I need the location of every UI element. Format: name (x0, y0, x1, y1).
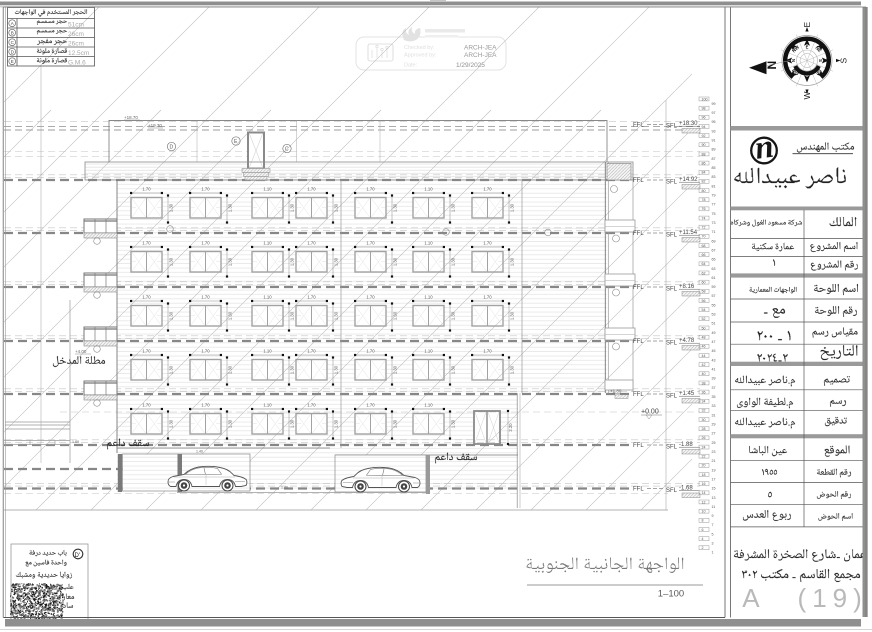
svg-text:89: 89 (712, 148, 716, 152)
svg-text:35: 35 (712, 395, 716, 399)
svg-text:1.70: 1.70 (201, 187, 210, 192)
svg-text:32: 32 (702, 409, 706, 413)
svg-text:45: 45 (712, 349, 716, 353)
svg-text:1.30: 1.30 (169, 311, 174, 320)
svg-text:68: 68 (702, 244, 706, 248)
svg-text:69: 69 (712, 239, 716, 243)
svg-text:FFL: FFL (633, 123, 644, 129)
svg-text:92: 92 (702, 134, 706, 138)
svg-text:11: 11 (712, 505, 716, 509)
svg-text:A: A (11, 21, 14, 26)
svg-text:1.88: 1.88 (72, 440, 79, 444)
svg-text:SFL: SFL (666, 488, 678, 494)
svg-text:53: 53 (712, 313, 716, 317)
svg-text:75: 75 (712, 212, 716, 216)
svg-text:1.70: 1.70 (142, 187, 151, 192)
svg-text:1.70: 1.70 (483, 295, 492, 300)
svg-text:18: 18 (702, 473, 706, 477)
svg-text:46: 46 (702, 345, 706, 349)
svg-text:1.30: 1.30 (393, 365, 398, 374)
svg-text:1.30: 1.30 (290, 365, 295, 374)
svg-text:40: 40 (702, 372, 706, 376)
svg-text:4: 4 (702, 537, 704, 541)
svg-text:1.70: 1.70 (307, 187, 316, 192)
svg-text:W: W (802, 91, 812, 99)
svg-text:1: 1 (712, 551, 714, 555)
svg-text:51cm: 51cm (68, 22, 84, 29)
svg-text:1.40: 1.40 (196, 450, 203, 454)
svg-text:76: 76 (702, 207, 706, 211)
svg-text:1.30: 1.30 (451, 203, 456, 212)
svg-text:26cm: 26cm (68, 41, 84, 48)
svg-text:25: 25 (712, 441, 716, 445)
svg-text:71: 71 (712, 230, 716, 234)
svg-text:1.30: 1.30 (393, 257, 398, 266)
svg-text:S: S (839, 58, 849, 64)
svg-text:1.70: 1.70 (366, 349, 375, 354)
svg-text:95: 95 (712, 120, 716, 124)
svg-text:E: E (802, 22, 812, 28)
svg-text:50: 50 (702, 326, 706, 330)
svg-text:FFL: FFL (633, 392, 644, 398)
svg-text:1.30: 1.30 (334, 257, 339, 266)
svg-text:20: 20 (702, 464, 706, 468)
svg-text:78: 78 (702, 198, 706, 202)
svg-text:62: 62 (702, 271, 706, 275)
svg-text:1.70: 1.70 (142, 349, 151, 354)
svg-text:1.30: 1.30 (334, 365, 339, 374)
svg-text:1.30: 1.30 (451, 365, 456, 374)
svg-text:1.70: 1.70 (201, 295, 210, 300)
svg-text:42: 42 (702, 363, 706, 367)
svg-text:21: 21 (712, 459, 716, 463)
svg-text:1.70: 1.70 (483, 349, 492, 354)
svg-text:8: 8 (702, 519, 704, 523)
svg-text:5: 5 (712, 532, 714, 536)
svg-text:1.70: 1.70 (307, 241, 316, 246)
svg-text:51: 51 (712, 322, 716, 326)
svg-text:97: 97 (712, 111, 716, 115)
svg-text:36: 36 (702, 390, 706, 394)
svg-text:G.M.6: G.M.6 (68, 60, 86, 67)
svg-text:81: 81 (712, 184, 716, 188)
svg-text:85: 85 (712, 166, 716, 170)
svg-text:B: B (11, 31, 14, 36)
svg-text:FFL: FFL (633, 339, 644, 345)
svg-text:66: 66 (702, 253, 706, 257)
svg-text:1.30: 1.30 (290, 419, 295, 428)
svg-text:87: 87 (712, 157, 716, 161)
svg-text:1.30: 1.30 (290, 311, 295, 320)
svg-text:E: E (11, 59, 14, 64)
svg-text:1.30: 1.30 (393, 311, 398, 320)
svg-text:3: 3 (712, 542, 714, 546)
svg-text:86: 86 (702, 161, 706, 165)
svg-text:41: 41 (712, 368, 716, 372)
svg-text:1.70: 1.70 (483, 187, 492, 192)
svg-text:1.40: 1.40 (281, 486, 288, 490)
svg-text:1.30: 1.30 (451, 311, 456, 320)
svg-text:FFL: FFL (633, 443, 644, 449)
svg-text:1.70: 1.70 (366, 295, 375, 300)
svg-text:9: 9 (712, 514, 714, 518)
svg-text:39: 39 (712, 377, 716, 381)
svg-text:D': D' (75, 553, 80, 559)
svg-text:1.30: 1.30 (228, 365, 233, 374)
svg-text:1.30: 1.30 (451, 419, 456, 428)
svg-text:1.30: 1.30 (228, 311, 233, 320)
svg-text:E: E (806, 45, 809, 50)
svg-text:23: 23 (712, 450, 716, 454)
svg-text:1–100: 1–100 (658, 589, 684, 600)
svg-text:1.30: 1.30 (393, 203, 398, 212)
svg-text:100: 100 (702, 97, 708, 101)
svg-text:1.30: 1.30 (169, 257, 174, 266)
svg-text:80: 80 (702, 189, 706, 193)
svg-text:1.30: 1.30 (228, 257, 233, 266)
svg-text:1.10: 1.10 (263, 403, 272, 408)
svg-text:SFL: SFL (666, 341, 678, 347)
svg-text:SFL: SFL (666, 124, 678, 130)
svg-text:1.30: 1.30 (169, 419, 174, 428)
svg-text:15: 15 (712, 487, 716, 491)
svg-text:1.70: 1.70 (366, 187, 375, 192)
svg-text:FFL: FFL (633, 285, 644, 291)
svg-text:13: 13 (712, 496, 716, 500)
svg-text:73: 73 (712, 221, 716, 225)
svg-text:48: 48 (702, 336, 706, 340)
svg-text:1.30: 1.30 (510, 203, 515, 212)
svg-text:+1.80: +1.80 (610, 388, 622, 393)
svg-text:72: 72 (702, 226, 706, 230)
svg-text:1.30: 1.30 (169, 203, 174, 212)
svg-text:58: 58 (702, 290, 706, 294)
svg-text:28: 28 (702, 427, 706, 431)
svg-text:98: 98 (702, 107, 706, 111)
svg-text:37: 37 (712, 386, 716, 390)
svg-text:1.10: 1.10 (424, 187, 433, 192)
svg-text:57: 57 (712, 294, 716, 298)
svg-text:55: 55 (712, 303, 716, 307)
svg-text:1.70: 1.70 (201, 241, 210, 246)
svg-text:+4.00: +4.00 (75, 349, 87, 354)
svg-text:10: 10 (702, 510, 706, 514)
svg-text:90: 90 (702, 143, 706, 147)
svg-text:1.30: 1.30 (393, 419, 398, 428)
svg-text:+0.00: +0.00 (641, 409, 659, 416)
svg-text:S: S (818, 59, 823, 62)
svg-text:12.5cm: 12.5cm (68, 50, 89, 57)
svg-text:1.70: 1.70 (201, 349, 210, 354)
svg-text:1.70: 1.70 (142, 403, 151, 408)
svg-text:1.70: 1.70 (307, 403, 316, 408)
svg-text:1.70: 1.70 (307, 295, 316, 300)
svg-text:1.10: 1.10 (424, 241, 433, 246)
svg-text:59: 59 (712, 285, 716, 289)
svg-text:1.30: 1.30 (451, 257, 456, 266)
svg-text:1.30: 1.30 (510, 311, 515, 320)
svg-text:1.10: 1.10 (424, 403, 433, 408)
svg-text:FFL: FFL (633, 178, 644, 184)
svg-text:49: 49 (712, 331, 716, 335)
svg-text:1.30: 1.30 (290, 257, 295, 266)
svg-text:SFL: SFL (666, 445, 678, 451)
svg-text:N: N (791, 59, 796, 62)
svg-text:7: 7 (712, 523, 714, 527)
svg-text:Date:: Date: (404, 63, 418, 69)
svg-text:1.70: 1.70 (366, 241, 375, 246)
svg-text:1.10: 1.10 (263, 295, 272, 300)
svg-text:SFL: SFL (666, 287, 678, 293)
svg-text:SFL: SFL (666, 180, 678, 186)
svg-text:1.70: 1.70 (142, 241, 151, 246)
svg-text:1.70: 1.70 (142, 295, 151, 300)
svg-text:83: 83 (712, 175, 716, 179)
svg-text:94: 94 (702, 125, 706, 129)
svg-text:ARCH-JEA: ARCH-JEA (464, 45, 497, 52)
svg-text:79: 79 (712, 194, 716, 198)
svg-text:1.10: 1.10 (263, 187, 272, 192)
svg-text:ARCH-JEA: ARCH-JEA (464, 52, 497, 59)
svg-text:96: 96 (702, 116, 706, 120)
svg-text:88: 88 (702, 152, 706, 156)
svg-text:19: 19 (712, 468, 716, 472)
svg-text:C: C (285, 147, 289, 153)
svg-text:99: 99 (712, 102, 716, 106)
svg-text:6: 6 (702, 528, 704, 532)
svg-text:74: 74 (702, 216, 706, 220)
svg-text:1.30: 1.30 (334, 203, 339, 212)
svg-text:91: 91 (712, 139, 716, 143)
svg-text:1.30: 1.30 (169, 365, 174, 374)
svg-text:44: 44 (702, 354, 706, 358)
svg-text:1.30: 1.30 (228, 203, 233, 212)
svg-text:+19.30: +19.30 (148, 123, 162, 128)
svg-text:56: 56 (702, 299, 706, 303)
svg-text:22: 22 (702, 455, 706, 459)
svg-text:61: 61 (712, 276, 716, 280)
svg-text:1.10: 1.10 (424, 349, 433, 354)
svg-text:33: 33 (712, 404, 716, 408)
svg-text:Approved by:: Approved by: (404, 53, 437, 59)
svg-text:43: 43 (712, 358, 716, 362)
svg-text:93: 93 (712, 129, 716, 133)
svg-text:12: 12 (702, 500, 706, 504)
svg-text:2.20: 2.20 (508, 423, 513, 432)
svg-text:1.70: 1.70 (201, 403, 210, 408)
svg-text:52: 52 (702, 317, 706, 321)
svg-text:SFL: SFL (666, 233, 678, 239)
svg-text:FFL: FFL (633, 231, 644, 237)
svg-text:27: 27 (712, 432, 716, 436)
svg-text:63: 63 (712, 267, 716, 271)
svg-text:77: 77 (712, 203, 716, 207)
svg-text:SFL: SFL (666, 394, 678, 400)
svg-text:17: 17 (712, 477, 716, 481)
svg-text:D: D (170, 145, 174, 151)
svg-text:+18.70: +18.70 (124, 115, 138, 120)
svg-text:W: W (805, 72, 809, 77)
svg-text:26: 26 (702, 436, 706, 440)
svg-text:47: 47 (712, 340, 716, 344)
svg-text:16: 16 (702, 482, 706, 486)
svg-text:65: 65 (712, 258, 716, 262)
svg-text:82: 82 (702, 180, 706, 184)
svg-text:54: 54 (702, 308, 706, 312)
svg-text:26cm: 26cm (68, 31, 84, 38)
svg-text:1.10: 1.10 (263, 241, 272, 246)
svg-text:FFL: FFL (633, 487, 644, 493)
svg-text:1.30: 1.30 (228, 419, 233, 428)
svg-text:N: N (765, 61, 779, 70)
svg-text:29: 29 (712, 423, 716, 427)
svg-text:24: 24 (702, 445, 706, 449)
svg-text:64: 64 (702, 262, 706, 266)
svg-text:70: 70 (702, 235, 706, 239)
svg-text:1.30: 1.30 (334, 311, 339, 320)
svg-text:1.30: 1.30 (510, 257, 515, 266)
svg-text:60: 60 (702, 281, 706, 285)
svg-text:1.70: 1.70 (483, 241, 492, 246)
svg-text:31: 31 (712, 413, 716, 417)
svg-text:67: 67 (712, 248, 716, 252)
svg-text:1.10: 1.10 (263, 349, 272, 354)
svg-text:38: 38 (702, 381, 706, 385)
svg-text:14: 14 (702, 491, 706, 495)
svg-text:1.70: 1.70 (307, 349, 316, 354)
svg-text:34: 34 (702, 400, 706, 404)
svg-text:Checked by:: Checked by: (404, 45, 435, 51)
svg-text:1.30: 1.30 (334, 419, 339, 428)
svg-text:84: 84 (702, 171, 706, 175)
svg-text:1.30: 1.30 (510, 365, 515, 374)
svg-text:1.30: 1.30 (290, 203, 295, 212)
svg-text:1.10: 1.10 (424, 295, 433, 300)
svg-text:30: 30 (702, 418, 706, 422)
svg-text:1.70: 1.70 (366, 403, 375, 408)
svg-text:2: 2 (702, 546, 704, 550)
svg-text:A (19): A (19) (742, 583, 868, 613)
